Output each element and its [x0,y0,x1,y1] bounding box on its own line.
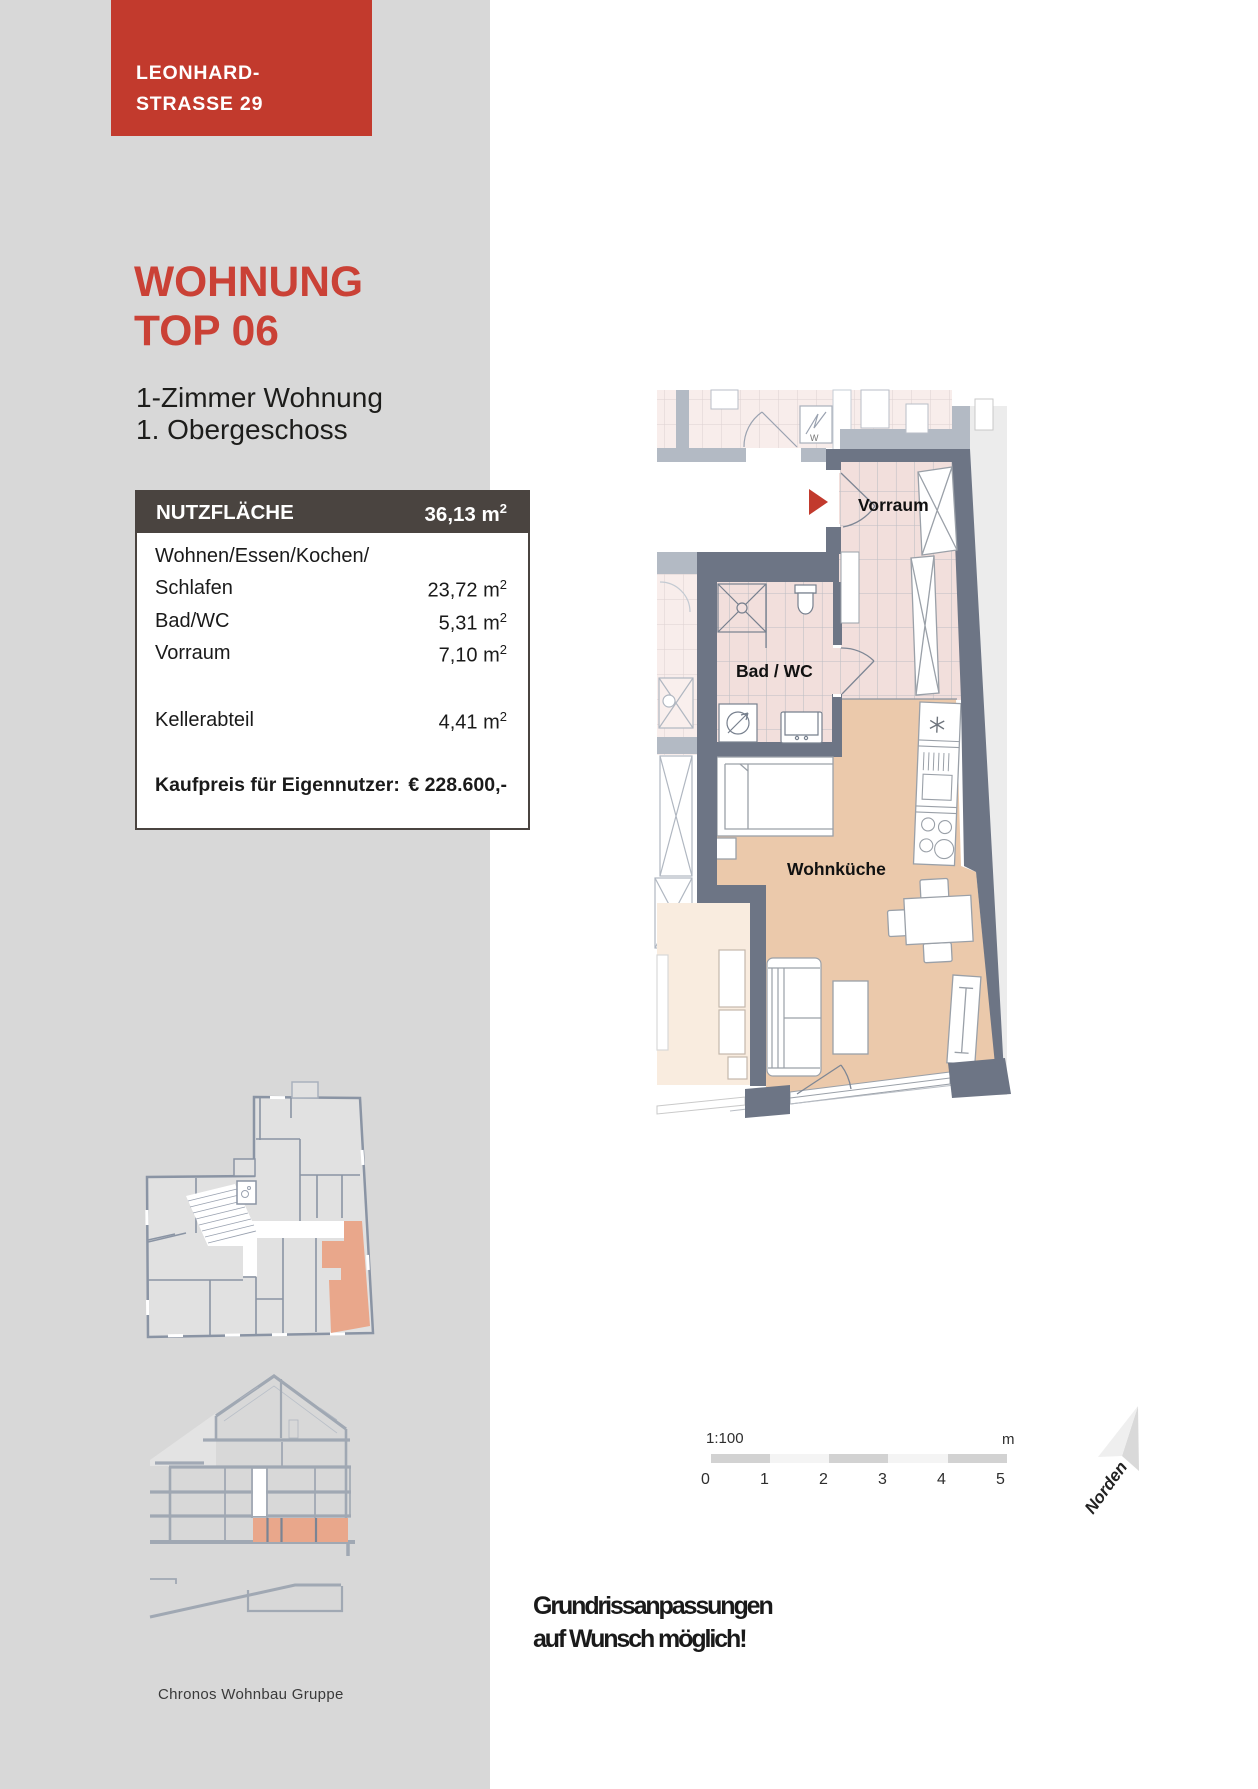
svg-text:Norden: Norden [1081,1458,1131,1517]
svg-text:Wohnküche: Wohnküche [787,859,886,879]
svg-text:W: W [810,433,819,443]
svg-text:Bad / WC: Bad / WC [736,661,813,681]
svg-text:Vorraum: Vorraum [858,495,929,515]
